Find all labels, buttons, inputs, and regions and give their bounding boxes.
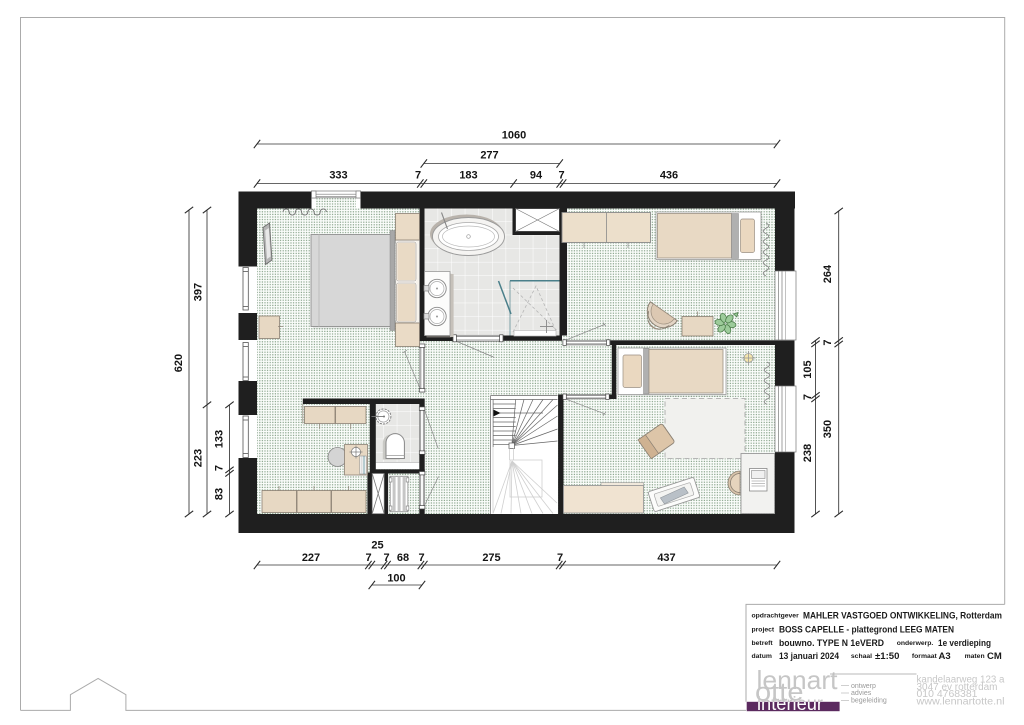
- svg-text:183: 183: [459, 170, 477, 182]
- svg-text:238: 238: [802, 444, 814, 462]
- svg-text:436: 436: [660, 170, 678, 182]
- svg-text:7: 7: [383, 552, 389, 564]
- svg-text:7: 7: [558, 170, 564, 182]
- svg-text:7: 7: [214, 465, 226, 471]
- svg-text:project: project: [752, 627, 775, 634]
- svg-text:68: 68: [397, 552, 409, 564]
- svg-text:7: 7: [822, 339, 834, 345]
- svg-text:7: 7: [418, 552, 424, 564]
- svg-text:ontwerp: ontwerp: [851, 683, 876, 690]
- svg-text:www.lennartotte.nl: www.lennartotte.nl: [915, 696, 1004, 707]
- svg-text:onderwerp.: onderwerp.: [897, 640, 934, 647]
- svg-text:1e verdieping: 1e verdieping: [938, 638, 991, 649]
- svg-text:100: 100: [387, 572, 405, 584]
- svg-text:schaal: schaal: [851, 653, 872, 660]
- svg-text:betreft: betreft: [752, 640, 774, 647]
- svg-text:83: 83: [214, 488, 226, 500]
- svg-text:13 januari 2024: 13 januari 2024: [779, 651, 840, 662]
- svg-text:MAHLER VASTGOED ONTWIKKELING,: MAHLER VASTGOED ONTWIKKELING, Rotterdam: [803, 611, 1002, 622]
- svg-text:397: 397: [193, 283, 205, 301]
- svg-text:begeleiding: begeleiding: [851, 698, 887, 705]
- svg-text:94: 94: [530, 170, 543, 182]
- svg-text:227: 227: [302, 552, 320, 564]
- svg-text:7: 7: [365, 552, 371, 564]
- svg-text:7: 7: [415, 170, 421, 182]
- svg-text:datum: datum: [752, 653, 772, 660]
- svg-text:advies: advies: [851, 690, 872, 697]
- svg-text:BOSS CAPELLE - plattegrond LEE: BOSS CAPELLE - plattegrond LEEG MATEN: [779, 625, 954, 636]
- svg-text:7: 7: [802, 394, 814, 400]
- svg-text:CM: CM: [987, 651, 1002, 662]
- svg-text:±1:50: ±1:50: [875, 651, 900, 662]
- svg-text:A3: A3: [939, 651, 951, 662]
- svg-text:620: 620: [173, 354, 185, 372]
- svg-text:1060: 1060: [502, 130, 526, 142]
- svg-text:264: 264: [822, 264, 834, 283]
- svg-text:bouwno. TYPE N 1eVERD: bouwno. TYPE N 1eVERD: [779, 638, 884, 649]
- svg-text:maten: maten: [965, 653, 985, 660]
- svg-text:437: 437: [657, 552, 675, 564]
- svg-text:133: 133: [214, 430, 226, 448]
- svg-text:333: 333: [329, 170, 347, 182]
- svg-text:223: 223: [193, 449, 205, 467]
- svg-text:7: 7: [557, 552, 563, 564]
- svg-text:350: 350: [822, 420, 834, 438]
- svg-text:275: 275: [482, 552, 500, 564]
- svg-text:105: 105: [802, 360, 814, 378]
- svg-text:25: 25: [371, 540, 383, 552]
- svg-text:277: 277: [480, 150, 498, 162]
- svg-text:formaat: formaat: [912, 653, 938, 660]
- svg-text:opdrachtgever: opdrachtgever: [752, 613, 800, 620]
